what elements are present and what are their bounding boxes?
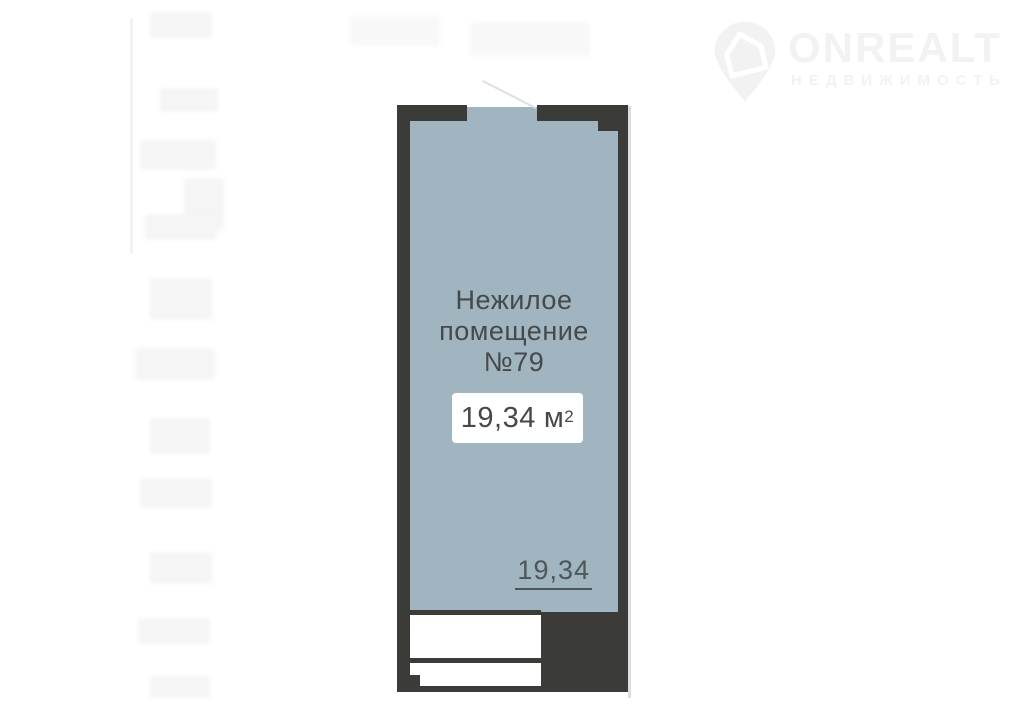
room-name-line1: Нежилое bbox=[410, 285, 618, 316]
house-pin-icon bbox=[702, 20, 788, 104]
door-swing-line bbox=[482, 80, 536, 109]
wall-bottom-left-step bbox=[397, 675, 420, 692]
dimension-label: 19,34 bbox=[515, 555, 592, 590]
ghost-artifact bbox=[138, 618, 210, 644]
ghost-artifact bbox=[160, 88, 218, 112]
wall-top-right bbox=[537, 105, 628, 121]
ghost-artifact bbox=[135, 348, 215, 380]
watermark-logo: ONREALT НЕДВИЖИМОСТЬ bbox=[700, 16, 1010, 100]
room-name-line2: помещение bbox=[410, 316, 618, 347]
ghost-artifact bbox=[140, 140, 216, 170]
ghost-artifact bbox=[150, 676, 210, 698]
area-superscript: 2 bbox=[564, 408, 574, 425]
ghost-artifact bbox=[350, 16, 440, 46]
ghost-artifact bbox=[150, 552, 212, 584]
wall-bottom-right-block bbox=[541, 612, 628, 692]
wall-left bbox=[397, 105, 410, 692]
brand-name: ONREALT bbox=[788, 24, 1003, 72]
ghost-artifact bbox=[145, 214, 217, 240]
floorplan-page: { "watermark": { "brand": "ONREALT", "su… bbox=[0, 0, 1024, 718]
door-opening bbox=[467, 107, 537, 121]
plan-edge-shadow bbox=[628, 106, 631, 698]
floorplan-unit-79: Нежилое помещение №79 19,34м2 19,34 bbox=[397, 105, 628, 692]
ghost-artifact bbox=[150, 278, 212, 320]
area-unit: м bbox=[544, 402, 564, 435]
ghost-artifact bbox=[470, 22, 590, 56]
ghost-artifact bbox=[130, 18, 133, 253]
ghost-artifact bbox=[140, 478, 212, 508]
area-badge: 19,34м2 bbox=[452, 393, 583, 443]
wall-right bbox=[618, 105, 628, 692]
window-bay-lower bbox=[410, 663, 541, 686]
ghost-artifact bbox=[150, 12, 212, 38]
area-value: 19,34 bbox=[461, 402, 536, 435]
room-number: №79 bbox=[410, 347, 618, 378]
wall-bottom-line bbox=[420, 686, 541, 692]
brand-subtitle: НЕДВИЖИМОСТЬ bbox=[791, 72, 1006, 89]
wall-corner-notch bbox=[598, 121, 618, 131]
room-name-label: Нежилое помещение №79 bbox=[410, 285, 618, 378]
ghost-artifact bbox=[150, 418, 210, 454]
window-bay-upper bbox=[410, 615, 541, 658]
